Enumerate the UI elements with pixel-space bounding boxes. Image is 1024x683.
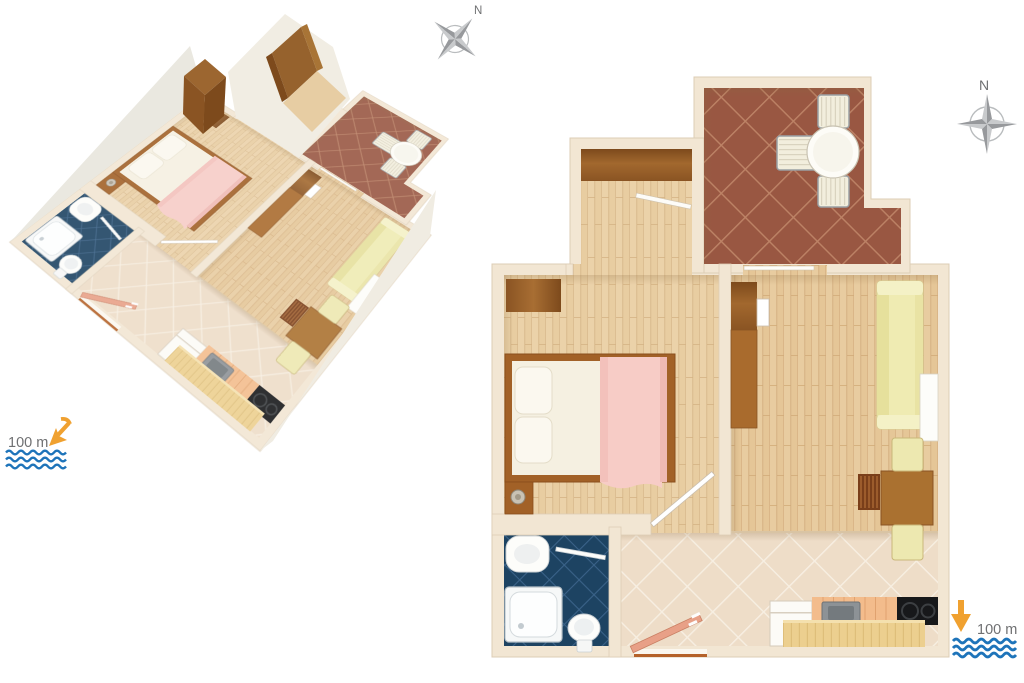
svg-text:N: N [979, 77, 989, 93]
svg-text:100 m: 100 m [8, 435, 48, 451]
svg-text:N: N [474, 5, 482, 17]
svg-text:100 m: 100 m [977, 622, 1017, 638]
